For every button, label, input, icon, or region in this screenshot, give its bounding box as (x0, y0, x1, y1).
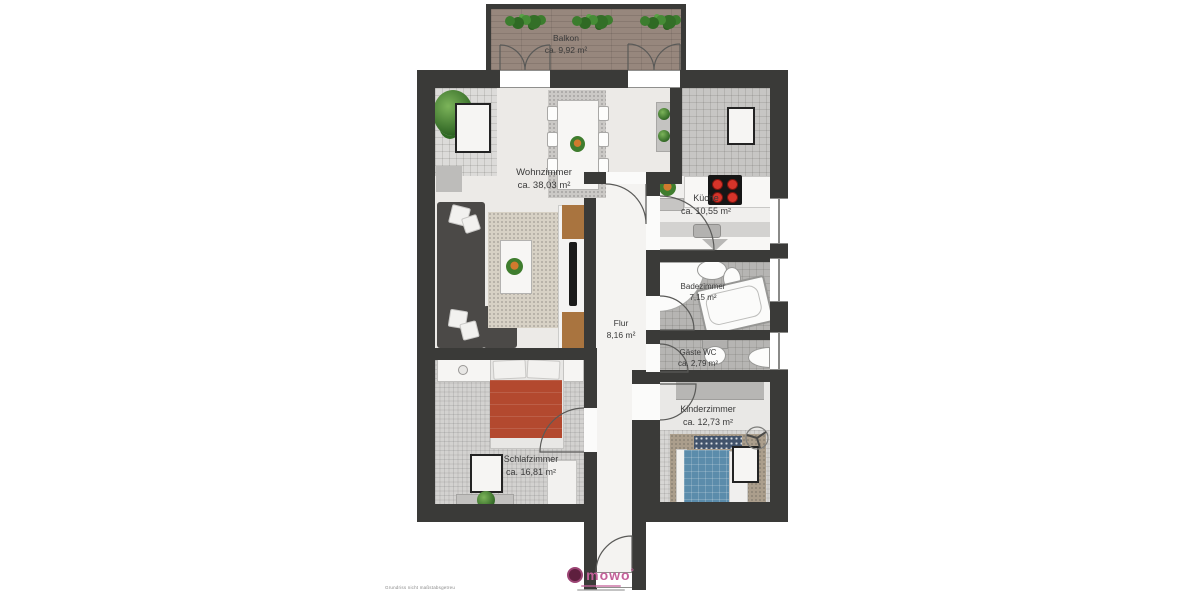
hall-door-opening (606, 172, 646, 184)
sink-icon (693, 224, 721, 238)
kids-desk (732, 446, 759, 483)
tv-board-shelf-top (562, 205, 584, 239)
burner-icon (727, 179, 738, 190)
balcony-door-sill-right (628, 70, 680, 88)
room-label-badezimmer: Badezimmer7,15 m² (650, 281, 756, 303)
logo-text: mowo° (586, 567, 635, 583)
tv-icon (569, 242, 577, 306)
balcony-door-sill-left (500, 70, 550, 88)
kitchen-table (727, 107, 755, 145)
room-label-kueche: Kücheca. 10,55 m² (652, 192, 760, 217)
room-label-kinderzimmer: Kinderzimmerca. 12,73 m² (650, 403, 766, 428)
kitchen-tiled-floor (682, 88, 770, 176)
pillow-icon (527, 359, 561, 380)
floor-plan: Balkonca. 9,92 m² Wohnzimmerca. 38,03 m²… (0, 0, 1200, 600)
bedroom-door-opening (584, 408, 597, 452)
wc-window (770, 332, 788, 370)
wall-kitchen-left (670, 88, 682, 176)
chair-icon (598, 106, 609, 121)
room-label-schlafzimmer: Schlafzimmerca. 16,81 m² (472, 453, 590, 478)
bed-duvet (490, 380, 562, 438)
wall-kidsroom-bottom (632, 502, 788, 522)
bath-window (770, 258, 788, 302)
side-table (455, 103, 491, 153)
planter-icon (640, 16, 650, 26)
pillow-icon (493, 359, 527, 380)
planter-icon (505, 16, 515, 26)
table-plant-icon (506, 258, 523, 275)
burner-icon (712, 179, 723, 190)
balcony-wall-right (681, 4, 686, 78)
logo-mark-icon (567, 567, 583, 583)
planter-icon (572, 16, 582, 26)
plan-footnote: Grundriss nicht maßstabsgetreu (385, 585, 455, 590)
cabinet-knob-icon (458, 365, 468, 375)
logo: mowo° (556, 567, 646, 591)
wall-top (417, 70, 788, 88)
plant-icon (658, 108, 670, 120)
wall-bedroom-bottom (417, 504, 597, 522)
chair-icon (547, 106, 558, 121)
wall-bath-wc (646, 330, 772, 340)
room-label-wohnzimmer: Wohnzimmerca. 38,03 m² (484, 166, 604, 193)
logo-tagline-bar (577, 589, 625, 592)
door-mat (436, 166, 462, 192)
logo-tagline-bar (581, 585, 621, 588)
chair-icon (598, 132, 609, 147)
table-plant-icon (570, 136, 585, 152)
kids-wardrobe (676, 382, 764, 400)
wall-kitchen-bath (646, 250, 772, 262)
room-label-flur: Flur8,16 m² (588, 318, 654, 342)
wall-bedroom-top (417, 348, 597, 360)
plant-icon (658, 130, 670, 142)
kids-bed (684, 450, 730, 504)
chair-icon (547, 132, 558, 147)
kitchen-window (770, 198, 788, 244)
room-label-gaeste-wc: Gäste WCca. 2,79 m² (650, 347, 746, 369)
wall-left (417, 70, 435, 522)
tv-board-shelf-bottom (562, 312, 584, 348)
room-label-balkon: Balkonca. 9,92 m² (506, 33, 626, 57)
